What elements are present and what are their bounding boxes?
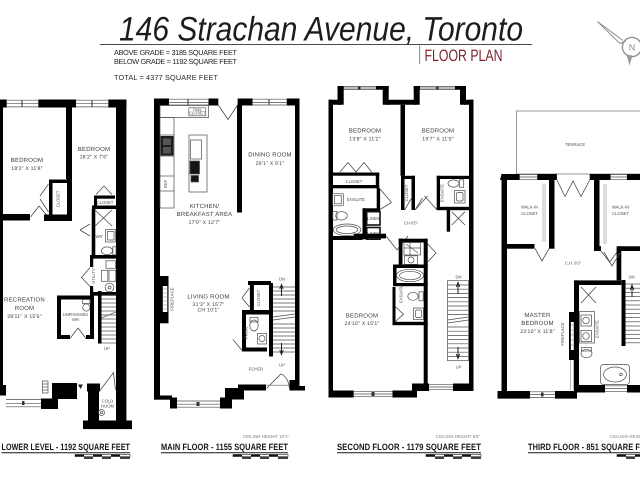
svg-text:WALK-IN: WALK-IN [612, 205, 629, 210]
svg-text:DN: DN [455, 275, 461, 280]
svg-text:C.H. 8'3": C.H. 8'3" [565, 261, 582, 266]
svg-text:28'11" X 15'6": 28'11" X 15'6" [7, 314, 42, 320]
svg-text:TERRACE: TERRACE [565, 142, 585, 147]
svg-text:THIRD FLOOR - 851 SQUARE F: THIRD FLOOR - 851 SQUARE F [528, 442, 640, 452]
svg-text:SECOND FLOOR - 1179 SQUARE FEE: SECOND FLOOR - 1179 SQUARE FEET [337, 442, 481, 452]
svg-text:13'8" X 11'2": 13'8" X 11'2" [349, 137, 381, 143]
svg-text:LOWER LEVEL - 1192 SQUARE FEET: LOWER LEVEL - 1192 SQUARE FEET [2, 442, 131, 452]
svg-text:BEDROOM: BEDROOM [349, 128, 381, 135]
svg-text:CH 8'5": CH 8'5" [404, 221, 419, 226]
svg-text:BEDROOM: BEDROOM [346, 313, 378, 320]
svg-text:ENSUITE: ENSUITE [595, 320, 600, 338]
svg-text:CEILING HEIGHT 8'5": CEILING HEIGHT 8'5" [436, 434, 480, 439]
svg-text:WALK-IN: WALK-IN [521, 205, 538, 210]
svg-text:BEDROOM: BEDROOM [521, 320, 553, 327]
svg-text:CLOSET: CLOSET [189, 111, 206, 116]
svg-text:REF: REF [163, 179, 168, 188]
svg-text:FIREPLACE: FIREPLACE [170, 287, 175, 310]
svg-text:ABOVE GRADE = 3185 SQUARE FEET: ABOVE GRADE = 3185 SQUARE FEET [114, 48, 238, 57]
svg-text:24'10" X 15'1": 24'10" X 15'1" [344, 321, 379, 327]
svg-text:BEDROOM: BEDROOM [422, 128, 454, 135]
svg-text:WR: WR [72, 317, 79, 322]
svg-text:N: N [629, 43, 636, 53]
svg-text:RECREATION: RECREATION [4, 297, 45, 304]
svg-text:PWDR: PWDR [244, 327, 249, 340]
svg-text:ROOM: ROOM [101, 404, 115, 409]
svg-text:18'2" X 11'8": 18'2" X 11'8" [11, 166, 43, 172]
svg-text:FLOOR PLAN: FLOOR PLAN [425, 47, 503, 65]
svg-text:CLOSET: CLOSET [97, 200, 114, 205]
svg-text:WR: WR [96, 234, 103, 239]
svg-text:UTILITY: UTILITY [91, 268, 96, 284]
svg-text:UP: UP [104, 346, 110, 351]
svg-text:CEILING HEIGHT 8: CEILING HEIGHT 8 [610, 434, 640, 439]
svg-text:LINEN: LINEN [367, 216, 379, 221]
svg-text:ROOM: ROOM [15, 305, 34, 312]
svg-text:CEILING HEIGHT 10'1": CEILING HEIGHT 10'1" [243, 434, 289, 439]
svg-text:23'10" X 11'8": 23'10" X 11'8" [520, 329, 555, 335]
svg-text:BELOW GRADE = 1192 SQUARE FEET: BELOW GRADE = 1192 SQUARE FEET [114, 57, 238, 66]
svg-text:ENSUITE: ENSUITE [439, 184, 444, 202]
svg-text:CLOSET: CLOSET [521, 211, 538, 216]
svg-text:MASTER: MASTER [524, 312, 551, 319]
svg-text:DN: DN [279, 277, 285, 282]
svg-text:TOTAL = 4377 SQUARE FEET: TOTAL = 4377 SQUARE FEET [114, 73, 219, 82]
svg-text:DN: DN [628, 275, 634, 280]
svg-text:146 Strachan Avenue, Toronto: 146 Strachan Avenue, Toronto [119, 11, 523, 49]
svg-text:CLOSET: CLOSET [56, 190, 61, 207]
svg-text:CLOSET: CLOSET [256, 289, 261, 306]
svg-text:19'7" X 11'0": 19'7" X 11'0" [422, 137, 454, 143]
svg-text:UP: UP [279, 363, 285, 368]
svg-text:CLOSET: CLOSET [404, 184, 409, 201]
svg-text:UP: UP [456, 365, 462, 370]
svg-text:BEDROOM: BEDROOM [78, 146, 110, 153]
svg-text:ENSUITE: ENSUITE [347, 197, 365, 202]
svg-text:ENSUITE: ENSUITE [399, 285, 404, 303]
svg-text:FOYER: FOYER [249, 367, 263, 372]
svg-text:18'2" X 7'6": 18'2" X 7'6" [80, 155, 109, 161]
svg-text:CLOSET: CLOSET [612, 211, 629, 216]
svg-text:DINING ROOM: DINING ROOM [248, 152, 292, 159]
svg-text:LIVING ROOM: LIVING ROOM [187, 294, 229, 301]
svg-text:BEDROOM: BEDROOM [11, 157, 43, 164]
svg-text:BREAKFAST AREA: BREAKFAST AREA [177, 211, 233, 218]
svg-text:CLOSET: CLOSET [346, 179, 363, 184]
svg-text:MAIN FLOOR - 1155 SQUARE FEET: MAIN FLOOR - 1155 SQUARE FEET [161, 442, 288, 452]
svg-text:FIREPLACE: FIREPLACE [560, 322, 565, 345]
svg-text:KITCHEN/: KITCHEN/ [190, 203, 220, 210]
svg-text:17'9" X 12'7": 17'9" X 12'7" [189, 220, 221, 226]
svg-text:29'1" X 9'1": 29'1" X 9'1" [256, 161, 285, 167]
svg-text:CH 10'1": CH 10'1" [197, 308, 219, 314]
